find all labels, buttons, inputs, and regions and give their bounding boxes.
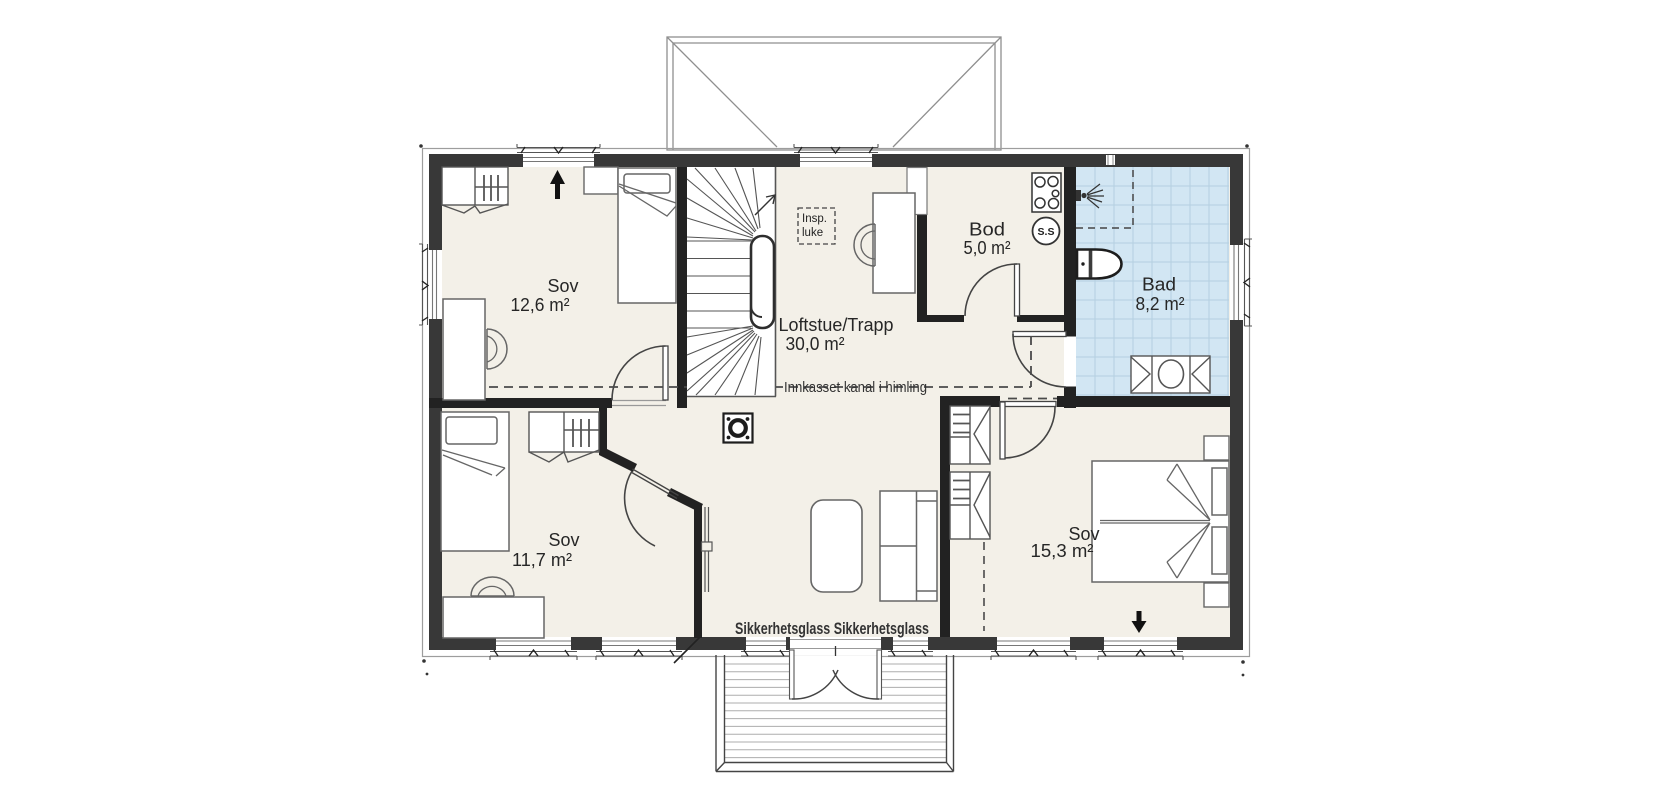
svg-text:Sikkerhetsglass Sikkerhetsglas: Sikkerhetsglass Sikkerhetsglass <box>735 620 929 638</box>
svg-text:5,0 m²: 5,0 m² <box>964 237 1011 258</box>
svg-text:Bad: Bad <box>1142 274 1176 295</box>
svg-text:8,2 m²: 8,2 m² <box>1136 293 1185 314</box>
svg-text:luke: luke <box>802 227 823 239</box>
svg-text:Loftstue/Trapp: Loftstue/Trapp <box>779 314 894 335</box>
svg-text:11,7 m²: 11,7 m² <box>512 549 572 570</box>
svg-text:15,3 m²: 15,3 m² <box>1031 540 1094 561</box>
svg-text:Innkasset kanal i himling: Innkasset kanal i himling <box>784 380 927 396</box>
svg-text:Insp.: Insp. <box>802 213 827 225</box>
svg-text:Sov: Sov <box>549 529 581 550</box>
svg-text:Sov: Sov <box>548 275 580 296</box>
svg-text:30,0 m²: 30,0 m² <box>786 333 845 354</box>
svg-text:12,6 m²: 12,6 m² <box>511 294 570 315</box>
svg-text:S.S: S.S <box>1038 226 1055 238</box>
